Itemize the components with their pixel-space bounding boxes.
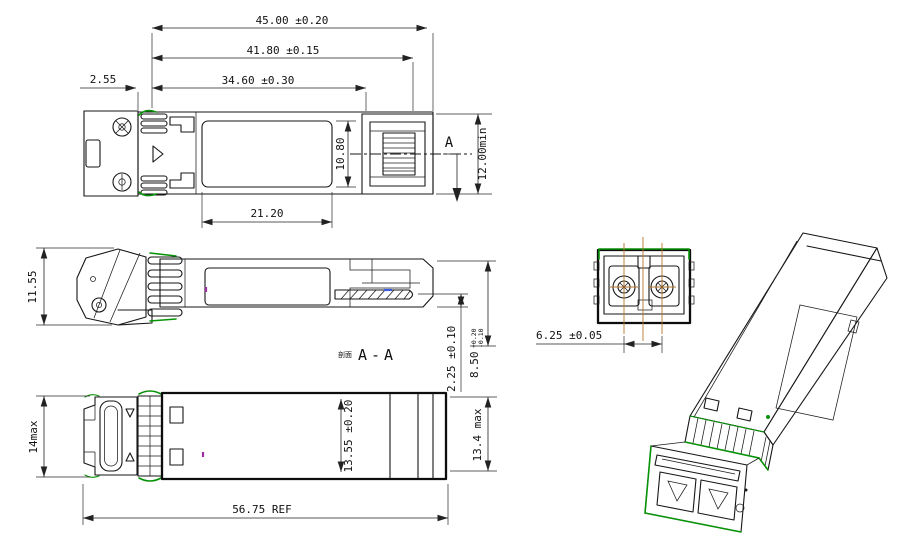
bottom-body xyxy=(162,393,446,479)
dim-body-length: 41.80 ±0.15 xyxy=(247,44,320,57)
dim-label-width: 10.80 xyxy=(334,137,347,170)
top-view: A 45.00 ±0.20 41.80 ±0.15 34.60 ±0.30 2.… xyxy=(80,14,492,228)
dim-latch-length: 34.60 ±0.30 xyxy=(222,74,295,87)
section-label: A-A xyxy=(358,346,397,364)
front-view: 6.25 ±0.05 xyxy=(536,237,694,353)
dim-overall-length: 45.00 ±0.20 xyxy=(256,14,329,27)
dim-height: 8.50 xyxy=(468,352,481,379)
bottom-view: 14max 13.55 ±0.20 13.4 max 56.75 REF xyxy=(27,391,497,525)
pcb-tongue xyxy=(335,290,413,299)
dim-height-group: 8.50 +0.20 -0.10 xyxy=(468,328,485,378)
bail-latch xyxy=(77,249,146,325)
dim-body-width: 13.55 ±0.20 xyxy=(342,400,355,473)
dim-max-width: 13.4 max xyxy=(471,408,484,461)
lc-port-right xyxy=(649,266,679,306)
label-recess-side xyxy=(205,268,330,305)
dim-front-height: 14max xyxy=(27,420,40,453)
section-mark-label: A xyxy=(445,135,454,151)
dim-label-length: 21.20 xyxy=(250,207,283,220)
drawing-canvas: A 45.00 ±0.20 41.80 ±0.15 34.60 ±0.30 2.… xyxy=(0,0,910,547)
dim-panel-min: 12.00min xyxy=(476,128,489,181)
dim-ref-length: 56.75 REF xyxy=(232,503,292,516)
section-label-prefix: 剖面 xyxy=(338,350,352,359)
dim-height-left: 11.55 xyxy=(26,270,39,303)
sfp-outline-drawing: A 45.00 ±0.20 41.80 ±0.15 34.60 ±0.30 2.… xyxy=(0,0,910,547)
dim-height-tol-minus: -0.10 xyxy=(477,328,485,348)
section-cut-arrow: A xyxy=(443,135,462,202)
isometric-view xyxy=(645,233,887,532)
dim-tongue-offset: 2.25 ±0.10 xyxy=(445,326,458,392)
dim-lc-pitch: 6.25 ±0.05 xyxy=(536,329,602,342)
dim-offset: 2.55 xyxy=(90,73,117,86)
label-recess xyxy=(202,121,332,187)
section-view: 11.55 2.25 ±0.10 8.50 +0.20 -0.10 剖面 A-A xyxy=(26,248,496,392)
